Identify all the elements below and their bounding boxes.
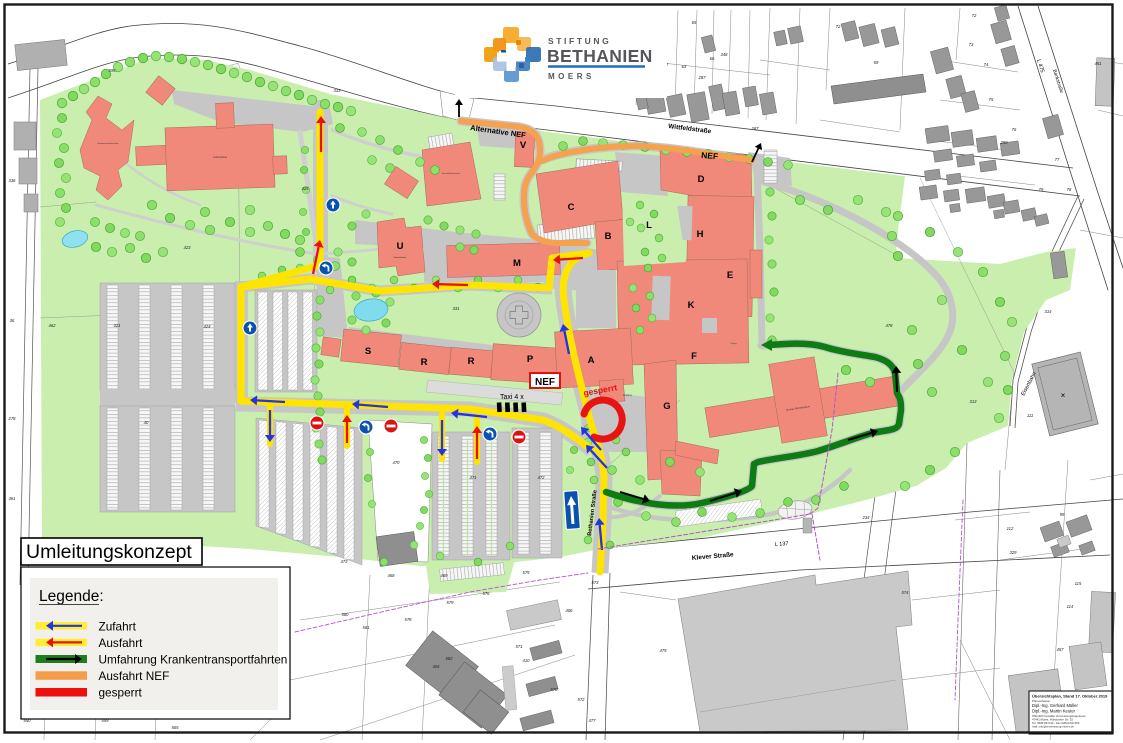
- svg-text:287: 287: [698, 75, 707, 80]
- svg-text:D: D: [698, 174, 705, 185]
- svg-text:P: P: [527, 354, 534, 365]
- svg-text:Zufahrt: Zufahrt: [99, 620, 137, 634]
- svg-text:Nebenkliniken: Nebenkliniken: [394, 257, 407, 259]
- svg-text:76: 76: [1012, 127, 1017, 132]
- svg-text:331: 331: [453, 306, 460, 311]
- svg-text:Lutherschule: Lutherschule: [213, 156, 227, 159]
- svg-text:115: 115: [1075, 581, 1082, 586]
- svg-text:G: G: [663, 401, 670, 412]
- svg-text:111: 111: [1027, 413, 1033, 418]
- svg-text:V: V: [520, 140, 527, 151]
- svg-text:78: 78: [1067, 187, 1072, 192]
- svg-text:U: U: [397, 241, 404, 252]
- svg-text:65: 65: [692, 20, 697, 25]
- svg-text:425: 425: [302, 186, 310, 191]
- svg-text:287: 287: [751, 126, 760, 131]
- svg-text:R: R: [468, 356, 475, 367]
- svg-text:Eingang: Eingang: [623, 394, 632, 397]
- svg-text:B: B: [605, 231, 612, 242]
- svg-text:75: 75: [989, 97, 994, 102]
- svg-text:114: 114: [1067, 604, 1074, 609]
- svg-text:E: E: [727, 270, 733, 281]
- svg-text:461: 461: [9, 496, 16, 501]
- svg-text:580: 580: [342, 612, 350, 617]
- svg-text:572: 572: [578, 697, 586, 702]
- svg-text:333: 333: [334, 88, 342, 93]
- svg-text:59: 59: [874, 60, 879, 65]
- svg-text:NEF: NEF: [701, 150, 719, 161]
- svg-text:73: 73: [969, 42, 974, 47]
- svg-text:336: 336: [9, 178, 17, 183]
- svg-text:348: 348: [721, 52, 729, 57]
- svg-text:314: 314: [1045, 309, 1053, 314]
- svg-text:63: 63: [682, 64, 687, 69]
- svg-text:329: 329: [1010, 550, 1018, 555]
- svg-text:Tiefgar.: Tiefgar.: [730, 342, 738, 345]
- svg-text:576: 576: [483, 591, 491, 596]
- svg-text:469: 469: [441, 573, 449, 578]
- svg-text:gesperrt: gesperrt: [99, 686, 143, 700]
- svg-text:398: 398: [109, 68, 117, 73]
- svg-text:L 137: L 137: [775, 541, 789, 548]
- svg-text:478: 478: [886, 323, 894, 328]
- svg-text:BETHANIEN: BETHANIEN: [547, 46, 653, 66]
- svg-text:Gemeinschaftsschule: Gemeinschaftsschule: [98, 142, 120, 145]
- svg-text:574: 574: [902, 590, 910, 595]
- svg-text:77: 77: [1055, 157, 1060, 162]
- svg-text:457: 457: [1057, 647, 1065, 652]
- svg-text:Dipl.-Ing. Gerhard Müller: Dipl.-Ing. Gerhard Müller: [1032, 703, 1078, 708]
- svg-text:Geschäftsbereiche: Geschäftsbereiche: [442, 172, 461, 175]
- svg-text:471: 471: [470, 475, 477, 480]
- svg-text:40: 40: [144, 420, 149, 425]
- svg-text:99: 99: [1060, 512, 1065, 517]
- svg-text:Umleitungskonzept: Umleitungskonzept: [26, 541, 192, 563]
- svg-text:582: 582: [446, 656, 454, 661]
- svg-text:421: 421: [114, 323, 121, 328]
- svg-text:473: 473: [341, 559, 349, 564]
- svg-text:424: 424: [204, 324, 212, 329]
- svg-text:×: ×: [1061, 391, 1066, 400]
- svg-text:579: 579: [447, 600, 455, 605]
- svg-text:410: 410: [523, 658, 531, 663]
- svg-text:578: 578: [405, 617, 413, 622]
- svg-text:313: 313: [970, 399, 978, 404]
- svg-text:MOERS: MOERS: [548, 72, 595, 81]
- svg-text:72: 72: [836, 24, 841, 29]
- svg-text:423: 423: [184, 245, 192, 250]
- svg-text:C: C: [568, 202, 575, 213]
- svg-text:STIFTUNG: STIFTUNG: [548, 36, 611, 46]
- svg-text:F: F: [691, 351, 697, 362]
- svg-text:mail: info@vermessung-moers.de: mail: info@vermessung-moers.de: [1032, 725, 1074, 729]
- svg-text:406: 406: [566, 608, 574, 613]
- svg-text:112: 112: [1007, 526, 1014, 531]
- svg-text:Taxi 4 x: Taxi 4 x: [500, 394, 524, 401]
- svg-text:475: 475: [660, 648, 668, 653]
- svg-text:74: 74: [984, 62, 989, 67]
- svg-text:573: 573: [592, 580, 600, 585]
- svg-text:581: 581: [363, 625, 370, 630]
- svg-text:A: A: [588, 355, 595, 366]
- svg-text:470: 470: [393, 460, 401, 465]
- svg-text:462: 462: [49, 323, 57, 328]
- svg-text:Ausfahrt: Ausfahrt: [99, 636, 144, 650]
- svg-text:36: 36: [10, 318, 15, 323]
- svg-text:278: 278: [8, 416, 17, 421]
- svg-text:72: 72: [972, 13, 977, 18]
- svg-text:570: 570: [551, 687, 559, 692]
- svg-text:Legende:: Legende:: [39, 588, 104, 605]
- svg-text:234: 234: [862, 515, 871, 520]
- svg-text:451: 451: [1095, 61, 1102, 66]
- svg-text:Ausfahrt NEF: Ausfahrt NEF: [99, 669, 170, 683]
- svg-text:468: 468: [388, 573, 396, 578]
- svg-text:575: 575: [523, 570, 531, 575]
- svg-text:571: 571: [516, 644, 523, 649]
- svg-text:K: K: [688, 300, 695, 311]
- svg-text:477: 477: [589, 718, 597, 723]
- svg-text:S: S: [365, 346, 371, 357]
- svg-text:R: R: [421, 357, 428, 368]
- svg-text:250: 250: [1000, 140, 1009, 145]
- svg-text:H: H: [697, 229, 704, 240]
- svg-text:472: 472: [538, 475, 546, 480]
- svg-text:Übersichtsplan, Stand 17. Okto: Übersichtsplan, Stand 17. Oktober 2019: [1032, 694, 1108, 699]
- svg-text:66: 66: [710, 56, 715, 61]
- svg-text:NEF: NEF: [535, 377, 555, 388]
- svg-text:M: M: [513, 258, 521, 269]
- svg-text:L: L: [646, 220, 652, 231]
- svg-text:Umfahrung Krankentransportfahr: Umfahrung Krankentransportfahrten: [99, 653, 288, 667]
- svg-text:404: 404: [433, 664, 441, 669]
- svg-text:79: 79: [1039, 187, 1044, 192]
- svg-text:Dipl.-Ing. Martin Keuter: Dipl.-Ing. Martin Keuter: [1032, 709, 1076, 714]
- svg-text:565: 565: [172, 725, 180, 730]
